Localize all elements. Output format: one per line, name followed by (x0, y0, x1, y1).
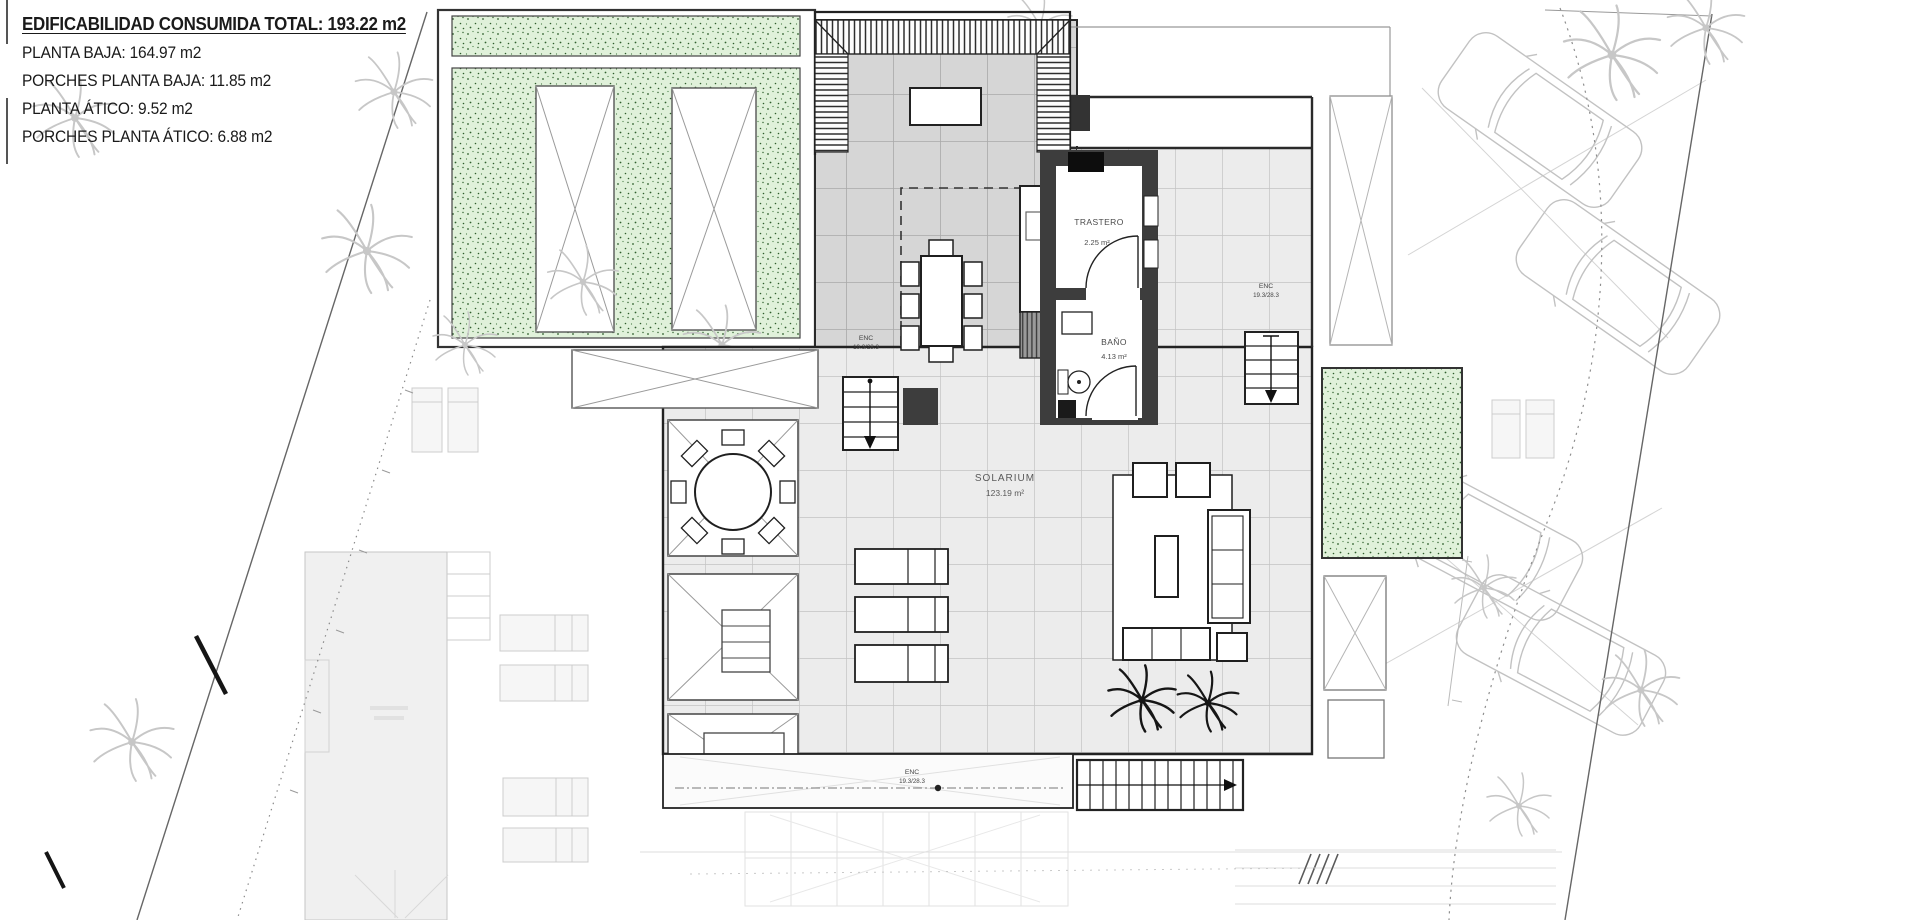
bottom-porch (663, 754, 1073, 808)
pool-terrace-ghost (745, 812, 1068, 906)
entrance-skylight (572, 350, 818, 408)
info-title: EDIFICABILIDAD CONSUMIDA TOTAL: 193.22 m… (22, 14, 406, 35)
boundary-thick-mark (196, 636, 226, 694)
solarium-area-label: 123.19 m² (986, 488, 1024, 498)
edificability-info-panel: EDIFICABILIDAD CONSUMIDA TOTAL: 193.22 m… (22, 14, 406, 156)
stair-start-dot (868, 379, 873, 384)
pergola-louvers-top (815, 20, 1070, 54)
skylight (910, 88, 981, 125)
sofa-cushions (1212, 516, 1243, 618)
door-opening (1092, 408, 1138, 420)
toilet-tank (1058, 370, 1068, 394)
palm-tree-icon (90, 699, 173, 781)
pool-steps-ghost (1235, 850, 1556, 904)
sun-loungers (855, 549, 948, 682)
stair-label-dining-dims: 19.3/28.3 (853, 344, 879, 351)
info-line-porches-atico: PORCHES PLANTA ÁTICO: 6.88 m2 (22, 128, 406, 147)
stair-right (1245, 332, 1298, 404)
toilet-drain (1077, 380, 1081, 384)
sofa-bottom (1123, 628, 1210, 660)
bathroom-sink (1062, 312, 1092, 334)
planter-east (1322, 368, 1462, 558)
dining-chair (964, 294, 982, 318)
dining-chair (964, 326, 982, 350)
stair-bottom (1077, 760, 1243, 810)
info-line-planta-atico: PLANTA ÁTICO: 9.52 m2 (22, 100, 406, 119)
stair-label-right: ENC (1259, 283, 1273, 290)
palm-tree-icon (322, 205, 412, 293)
chimney-block (903, 388, 938, 425)
dining-chair (901, 262, 919, 286)
planter-bed-top (452, 16, 800, 56)
small-hatch-mark (1299, 854, 1338, 884)
pool-skylight (536, 86, 614, 332)
boundary-line-top-right (1545, 10, 1712, 16)
bano-label: BAÑO (1101, 337, 1127, 347)
coffee-table (1155, 536, 1178, 597)
right-side-structures (1322, 96, 1462, 758)
pergola-louvers-left (815, 54, 848, 152)
palm-tree-icon (1487, 773, 1551, 836)
trastero-room (1056, 166, 1142, 288)
solarium-label: SOLARIUM (975, 473, 1035, 484)
stair-label-right-dims: 19.3/28.3 (1253, 292, 1279, 299)
floor-plan-canvas: EDIFICABILIDAD CONSUMIDA TOTAL: 193.22 m… (0, 0, 1920, 920)
north-wing-band (1070, 99, 1312, 146)
boundary-thick-mark (46, 852, 64, 888)
faint-label-placeholder (370, 706, 408, 710)
dining-chair (901, 326, 919, 350)
vent-shaft (1068, 152, 1104, 172)
stair-left (843, 377, 898, 450)
side-table (1217, 633, 1247, 661)
trastero-area-label: 2.25 m² (1084, 238, 1110, 247)
ground-floor-stair (447, 552, 490, 640)
dining-table (921, 256, 962, 346)
dining-chair (901, 294, 919, 318)
palm-tree-icon (1668, 0, 1745, 64)
stair-label-bottom-dims: 19.3/28.3 (899, 778, 925, 785)
axis-point (935, 785, 941, 791)
core-block: TRASTERO 2.25 m² BAÑO 4.13 m² (1040, 150, 1158, 425)
palm-tree-icon (1603, 650, 1680, 726)
info-line-porches-baja: PORCHES PLANTA BAJA: 11.85 m2 (22, 72, 406, 91)
wall-niche (1144, 240, 1158, 268)
door-opening (1086, 288, 1140, 300)
pool-skylight (672, 88, 756, 330)
pergola-box-2 (668, 574, 798, 700)
stair-label-bottom: ENC (905, 769, 919, 776)
round-dining-table (695, 454, 771, 530)
dining-chair (964, 262, 982, 286)
fence-line-top-right (1070, 27, 1390, 96)
info-line-planta-baja: PLANTA BAJA: 164.97 m2 (22, 44, 406, 63)
armchair (1176, 463, 1210, 497)
garden-block (438, 10, 815, 347)
sofa-set (1113, 463, 1250, 661)
ground-floor-building-outline (305, 552, 447, 920)
faint-label-placeholder (374, 716, 404, 720)
faint-dotted-line (690, 868, 1320, 874)
armchair (1133, 463, 1167, 497)
stair-label-dining: ENC (859, 335, 873, 342)
setback-dotted-curve-right (1449, 8, 1602, 920)
pergola-box-table (668, 420, 798, 556)
wall-niche (1144, 196, 1158, 226)
utility-box-east (1328, 700, 1384, 758)
bano-area-label: 4.13 m² (1101, 352, 1127, 361)
palm-tree-icon (1564, 6, 1660, 101)
wall-pier (1070, 95, 1090, 131)
trastero-label: TRASTERO (1074, 217, 1123, 227)
duct-box (1058, 400, 1076, 418)
pergola-louvers-right (1037, 54, 1070, 152)
